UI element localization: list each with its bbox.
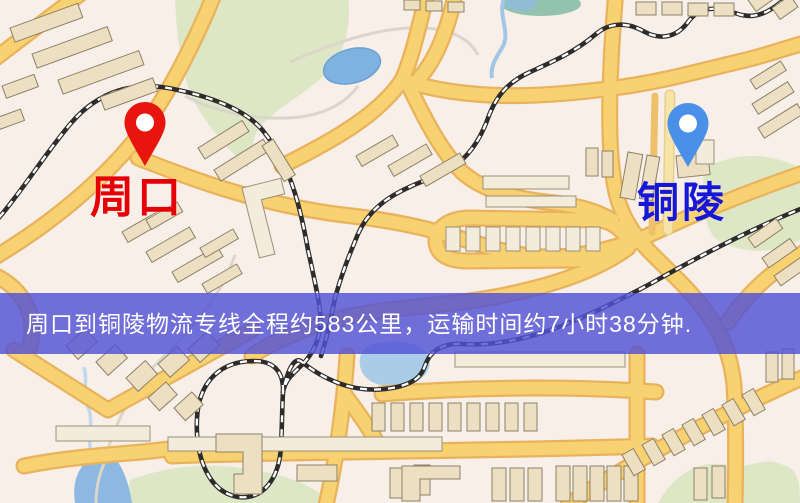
origin-pin-hole [136,114,154,132]
route-info-text: 周口到铜陵物流专线全程约583公里，运输时间约7小时38分钟. [26,305,692,339]
destination-pin-shape [668,103,709,167]
origin-pin-shape [125,102,166,166]
logistics-route-map: 周口 铜陵 周口到铜陵物流专线全程约583公里，运输时间约7小时38分钟. [0,0,800,503]
destination-city-label: 铜陵 [637,182,727,224]
route-info-banner: 周口到铜陵物流专线全程约583公里，运输时间约7小时38分钟. [0,293,800,354]
map-background [0,0,800,503]
destination-pin-hole [679,115,697,133]
destination-pin-icon[interactable] [664,101,712,169]
origin-pin-icon[interactable] [121,100,169,168]
origin-city-label: 周口 [90,176,184,220]
